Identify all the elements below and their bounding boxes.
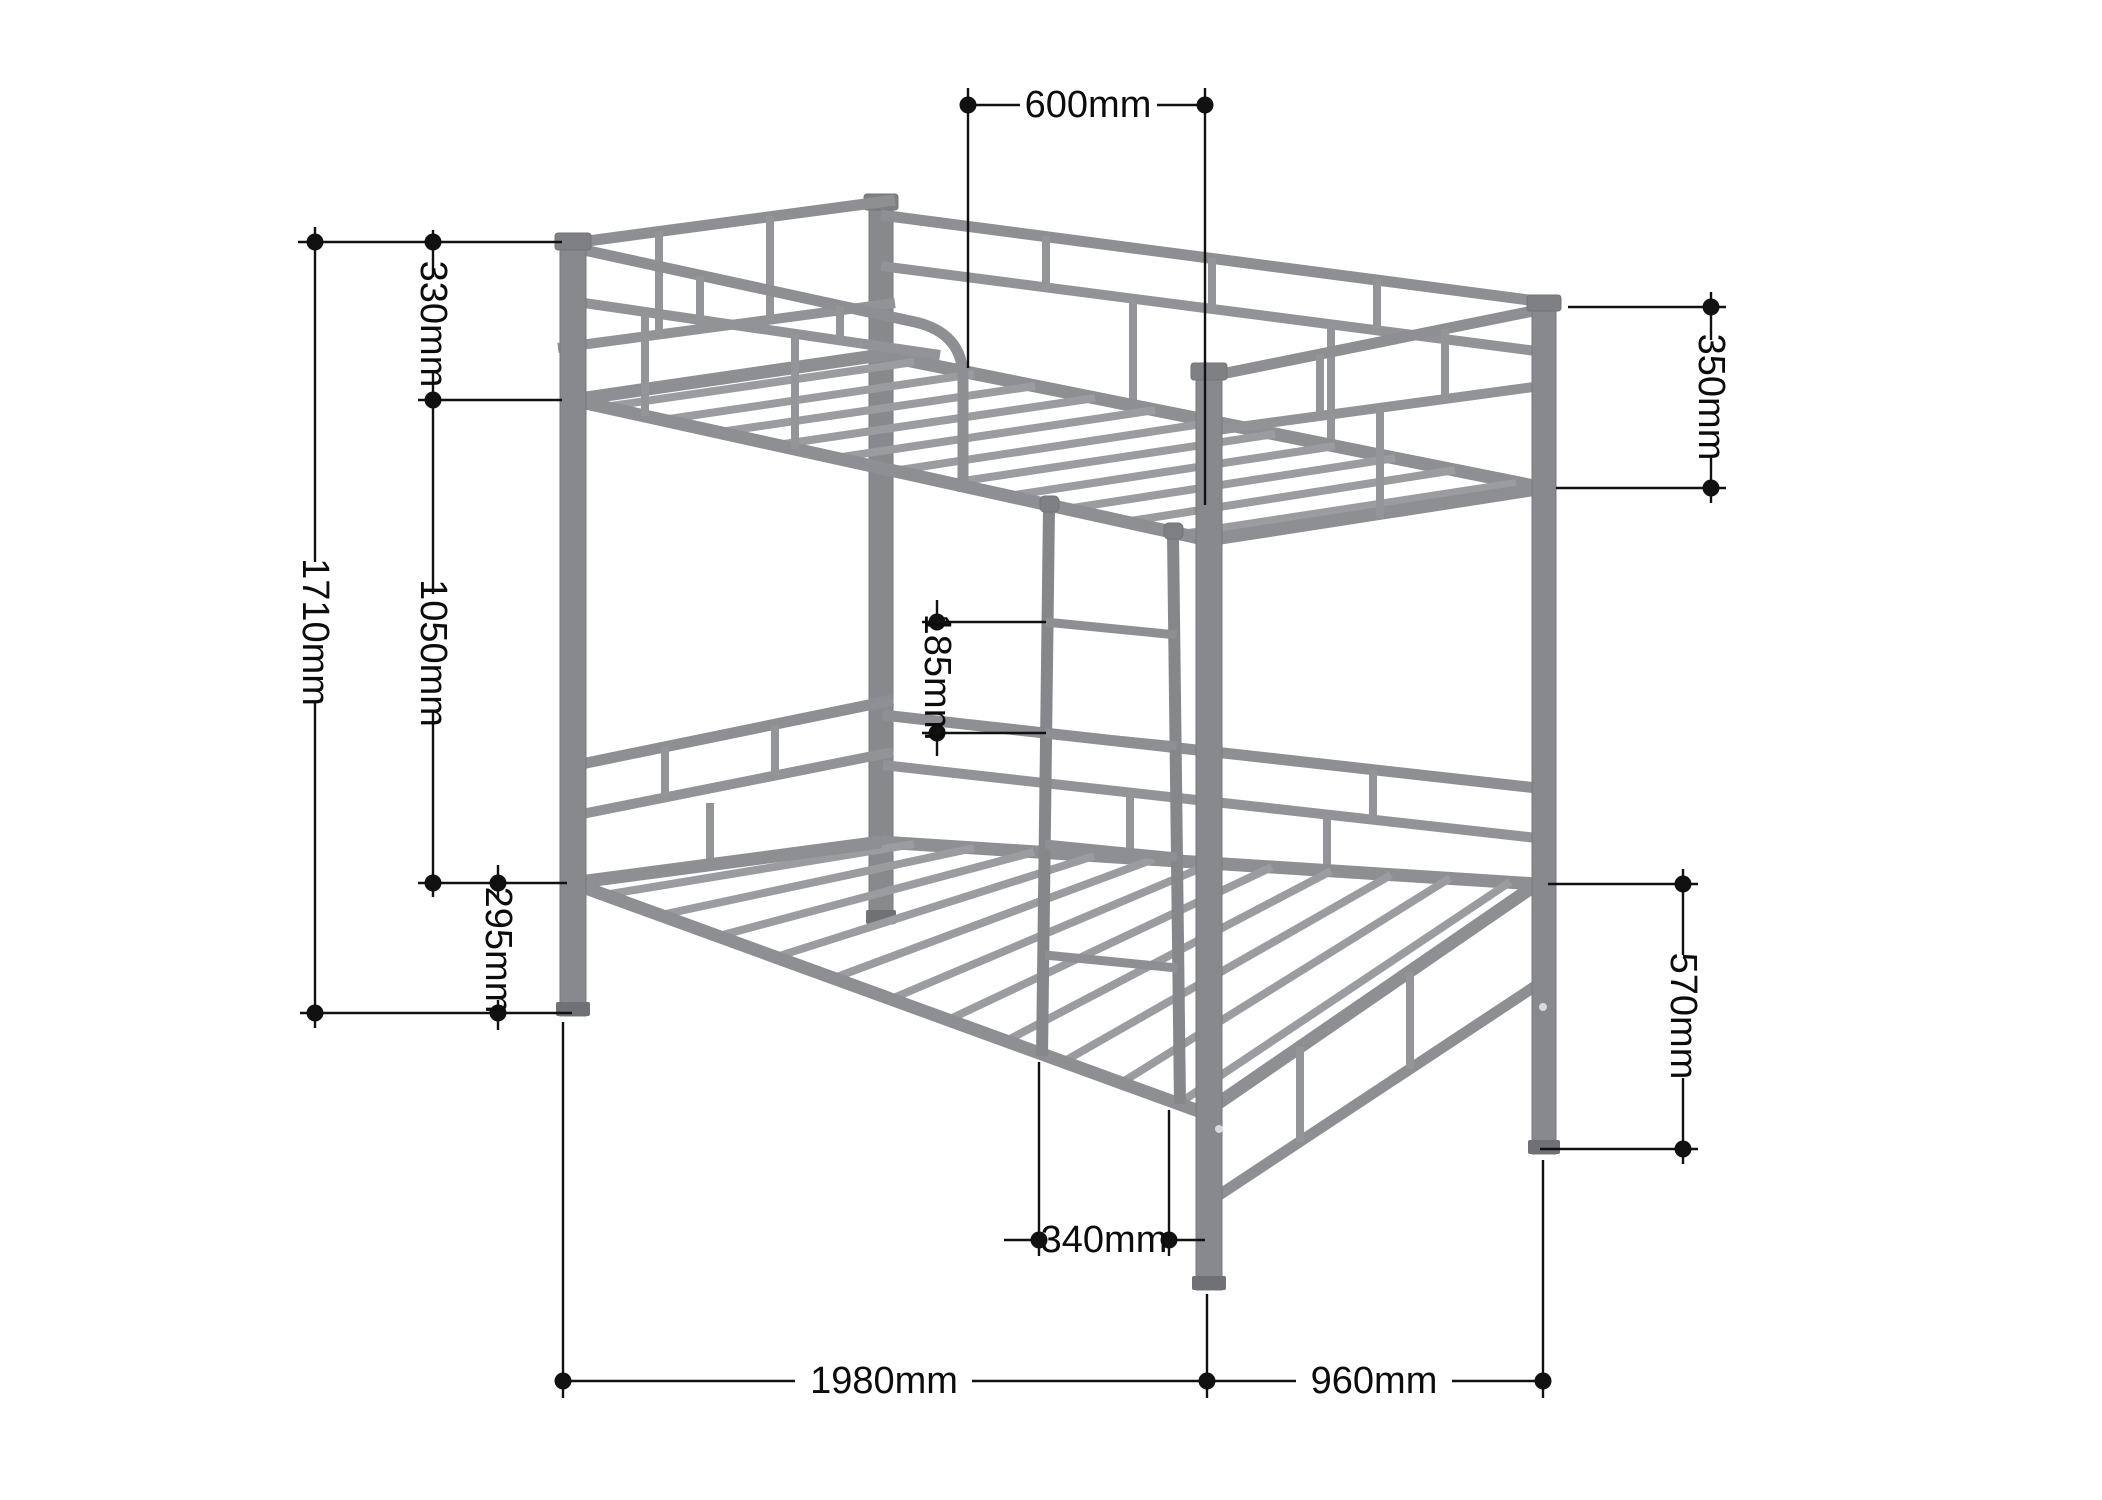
dim-label-top-opening: 600mm xyxy=(1025,84,1152,126)
dim-label-ladder-width: 340mm xyxy=(1041,1219,1168,1261)
dim-label-overall-height: 1710mm xyxy=(294,558,336,706)
post-front-right xyxy=(1191,363,1227,1290)
dim-label-bunk-gap: 1050mm xyxy=(412,579,454,727)
dim-label-lower-rail-height: 295mm xyxy=(477,887,519,1014)
post-back-right xyxy=(1527,295,1561,1154)
bunk-bed-dimension-diagram: 600mm 1710mm 330mm 1050mm xyxy=(0,0,2102,1500)
dim-label-left-guard-height: 330mm xyxy=(412,261,454,388)
dim-label-bed-depth: 960mm xyxy=(1311,1360,1438,1402)
post-front-left xyxy=(555,233,591,1016)
dimension-left-group: 1710mm 330mm 1050mm 295mm xyxy=(294,227,572,1030)
dim-label-rung-spacing: 185mm xyxy=(916,614,958,741)
lower-right-end-board xyxy=(1204,972,1537,1205)
dimension-right-group: 350mm 570mm xyxy=(1540,292,1732,1164)
dim-label-right-guard-height: 350mm xyxy=(1690,334,1732,461)
dimension-185mm: 185mm xyxy=(916,600,1046,756)
upper-bunk-deck xyxy=(572,355,1544,540)
dim-label-bed-length: 1980mm xyxy=(810,1360,958,1402)
diagram-canvas: 600mm 1710mm 330mm 1050mm xyxy=(0,0,2102,1500)
lower-bunk-deck xyxy=(572,842,1537,1113)
dim-label-lower-frame-height: 570mm xyxy=(1662,953,1704,1080)
bunk-bed-illustration xyxy=(555,194,1561,1290)
